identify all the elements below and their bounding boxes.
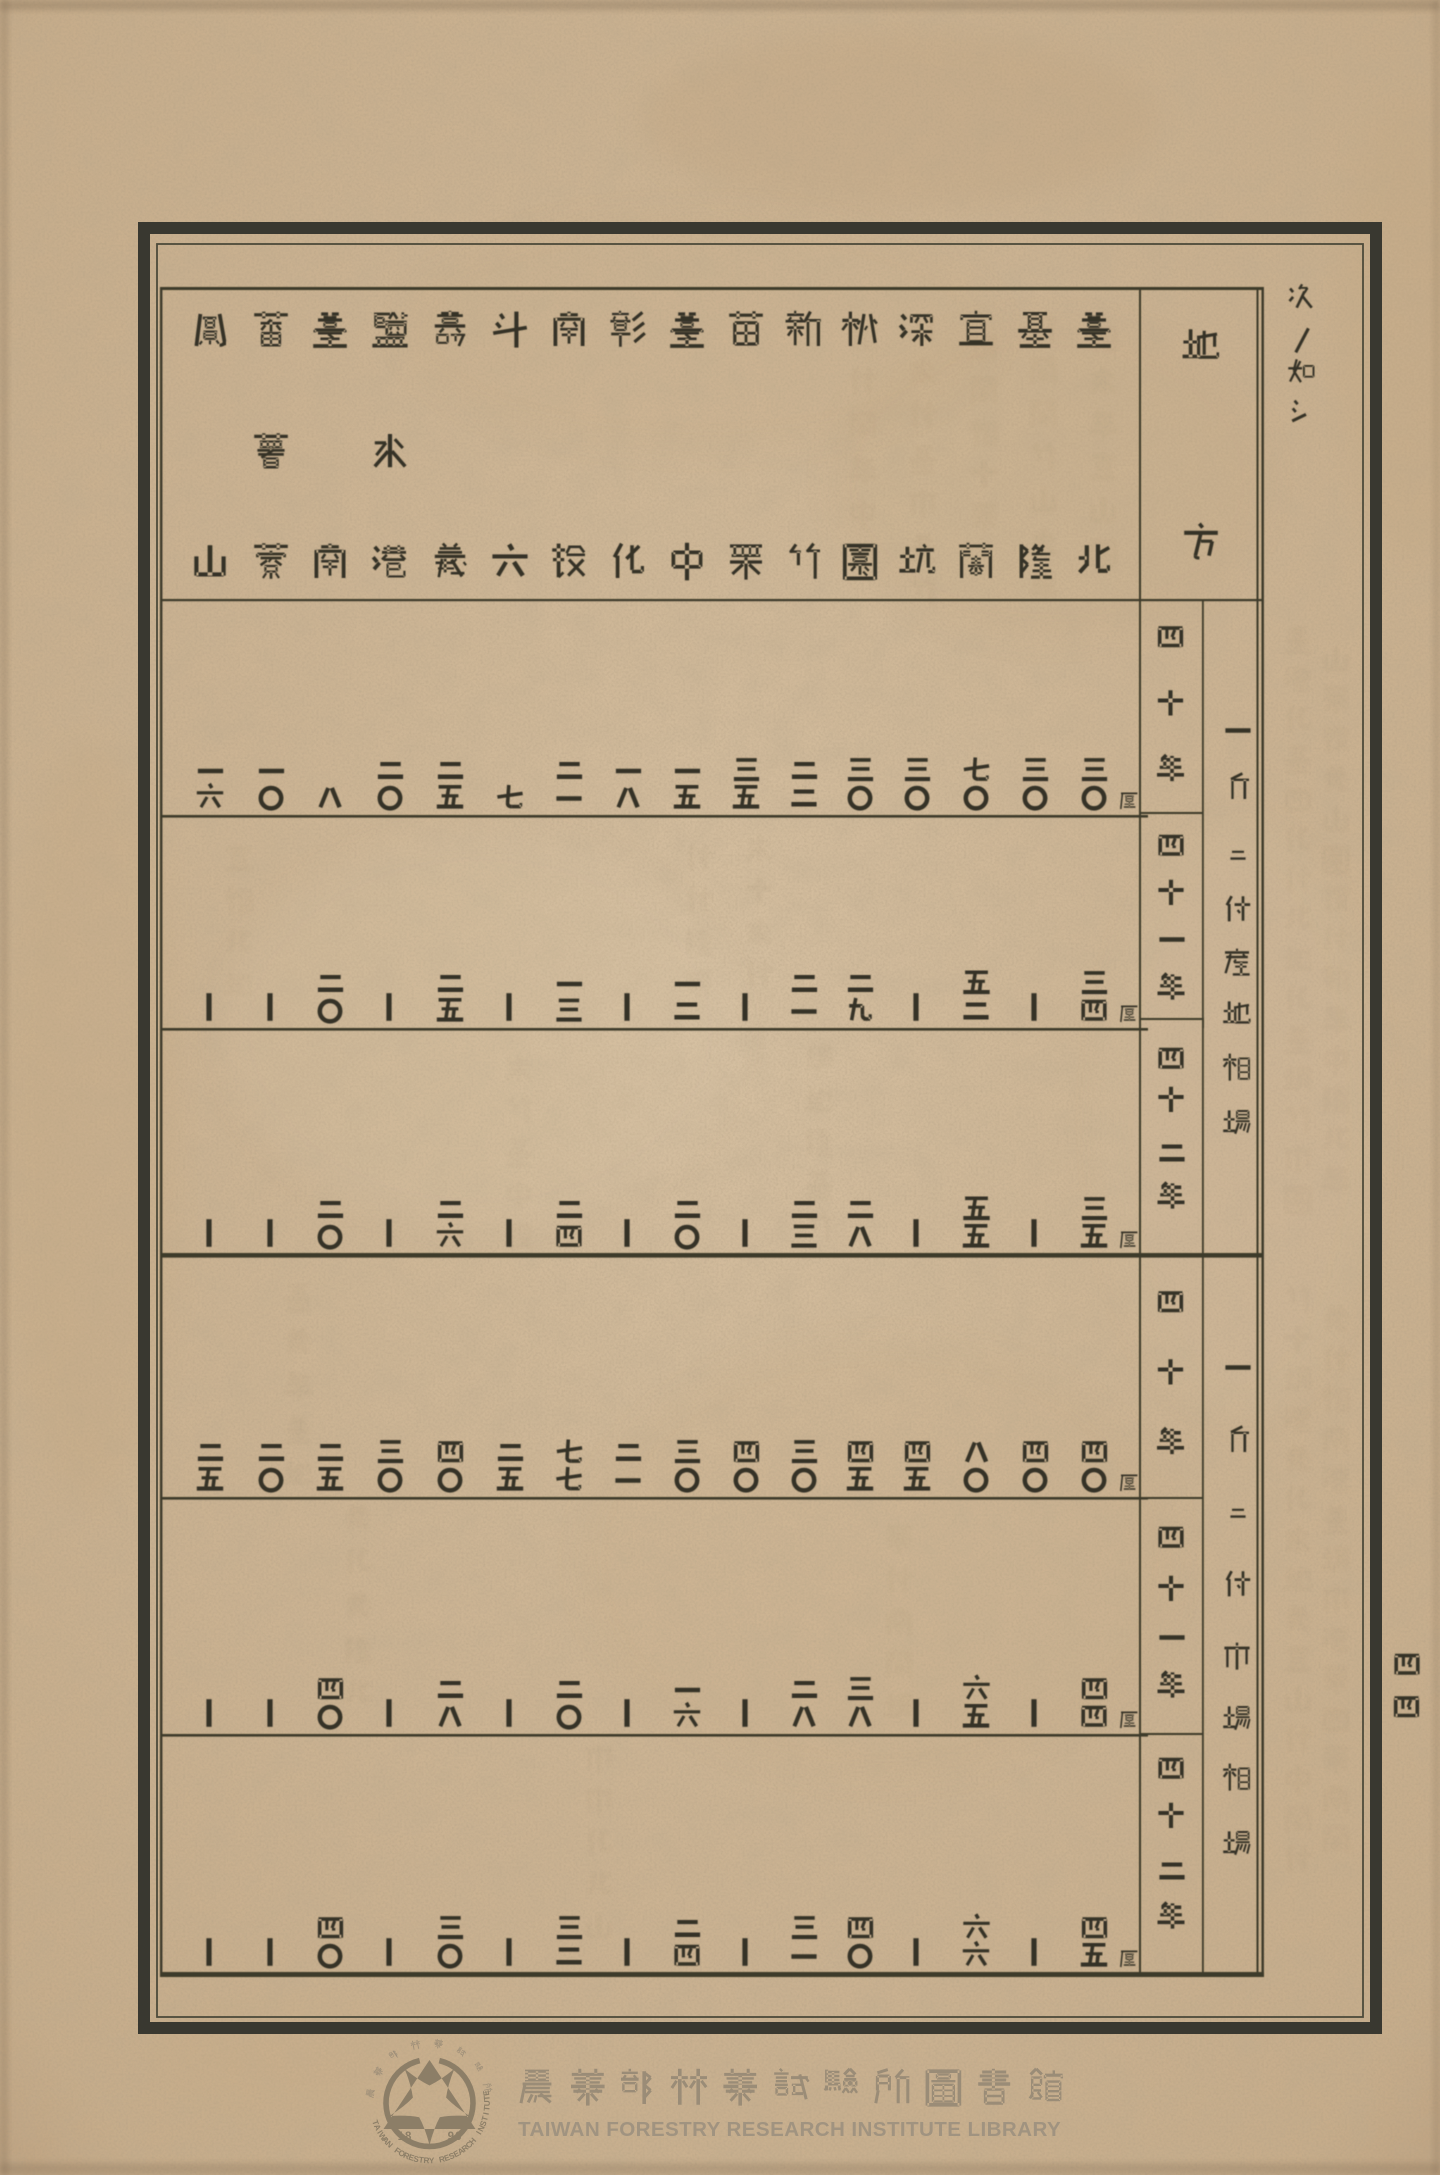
svg-text:Y: Y	[429, 2156, 435, 2165]
svg-text:96: 96	[448, 2131, 463, 2143]
svg-text:18: 18	[398, 2131, 413, 2143]
svg-text:TAIWAN FORESTRY RESEARCH INSTI: TAIWAN FORESTRY RESEARCH INSTITUTE LIBRA…	[518, 2118, 1061, 2141]
